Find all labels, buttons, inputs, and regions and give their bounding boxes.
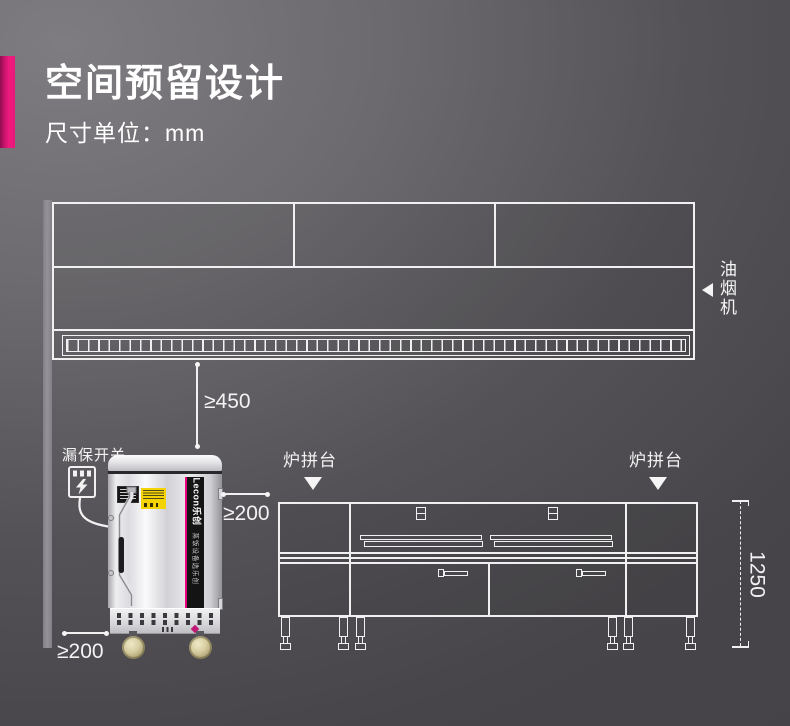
counter-leg-1: [280, 617, 291, 650]
steam-vent-row-2: [117, 620, 213, 625]
dim-200-right-dot-r: [265, 492, 270, 497]
dim-450-label: ≥450: [204, 391, 251, 412]
counter-leg-5: [623, 617, 634, 650]
steam-cabinet: Lecon乐创 蒸饭设备选乐创: [108, 455, 222, 659]
hood-label: 油烟机: [714, 260, 739, 317]
hood-lower-divider: [52, 329, 695, 331]
spec-diagram-page: 空间预留设计 尺寸单位：mm 油烟机 ≥450 漏保开关: [0, 0, 790, 726]
counter-vdiv-left: [349, 502, 351, 617]
hood-horizontal-divider: [52, 266, 695, 268]
vent-marks: [162, 627, 173, 632]
lightning-icon: [76, 479, 88, 495]
counter-vdiv-right: [625, 502, 627, 617]
dim-200-right-line: [223, 493, 268, 495]
steam-vent-row-1: [117, 613, 213, 618]
counter-drawing: [278, 502, 698, 652]
dim-200-left-dot-l: [62, 631, 67, 636]
platform-label-right: 炉拼台: [629, 452, 683, 469]
hood-grille-slats: [66, 339, 686, 352]
door-handle: [108, 455, 222, 615]
burner-knob-left: [416, 507, 426, 520]
dim-450-line: [196, 365, 198, 446]
dim-1250-label: 1250: [747, 545, 768, 605]
dim-1250-tick-top: [732, 500, 749, 502]
counter-hline-2: [278, 557, 698, 559]
hood-grille: [62, 335, 690, 356]
platform-pointer-right: [649, 477, 667, 490]
tray-slot-right-lower: [494, 541, 613, 547]
counter-leg-3: [355, 617, 366, 650]
dim-1250-line: [740, 501, 741, 646]
burner-knob-right: [548, 507, 558, 520]
breaker-box-icon: [68, 466, 96, 498]
tray-slot-left-lower: [364, 541, 483, 547]
dim-200-left-dot-r: [104, 631, 109, 636]
dim-200-right-label: ≥200: [223, 503, 270, 524]
caster-wheel-left: [122, 636, 145, 659]
dim-450-dot-top: [195, 362, 200, 367]
tray-slot-left-upper: [360, 535, 482, 540]
dim-1250-tick-bottom: [732, 646, 749, 648]
hinge-screw-top: [108, 515, 114, 521]
counter-leg-6: [685, 617, 696, 650]
drawer-handle-right-bar: [582, 571, 606, 576]
platform-pointer-left: [304, 477, 322, 490]
unit-subtitle: 尺寸单位：mm: [45, 114, 205, 148]
platform-label-left: 炉拼台: [283, 452, 337, 469]
hood-vertical-divider-2: [494, 202, 496, 268]
accent-bar: [0, 56, 15, 148]
tray-slot-right-upper: [490, 535, 612, 540]
counter-leg-4: [607, 617, 618, 650]
dim-200-right-dot-l: [221, 492, 226, 497]
drawer-handle-left-bar: [444, 571, 468, 576]
caster-wheel-right: [189, 636, 212, 659]
wall-bar: [43, 200, 52, 648]
dim-200-left-line: [64, 632, 107, 634]
dim-200-left-label: ≥200: [57, 641, 104, 662]
hood-vertical-divider-1: [293, 202, 295, 268]
hood-pointer-icon: [702, 283, 713, 297]
page-title: 空间预留设计: [45, 52, 285, 107]
hinge-screw-bottom: [108, 570, 114, 576]
dim-1250-tick-top-stub: [748, 500, 750, 506]
counter-hline-1: [278, 552, 698, 554]
counter-leg-2: [338, 617, 349, 650]
dim-1250-tick-bottom-stub: [748, 641, 750, 647]
dim-450-dot-bottom: [195, 444, 200, 449]
counter-lower-vdiv-mid: [488, 562, 490, 617]
